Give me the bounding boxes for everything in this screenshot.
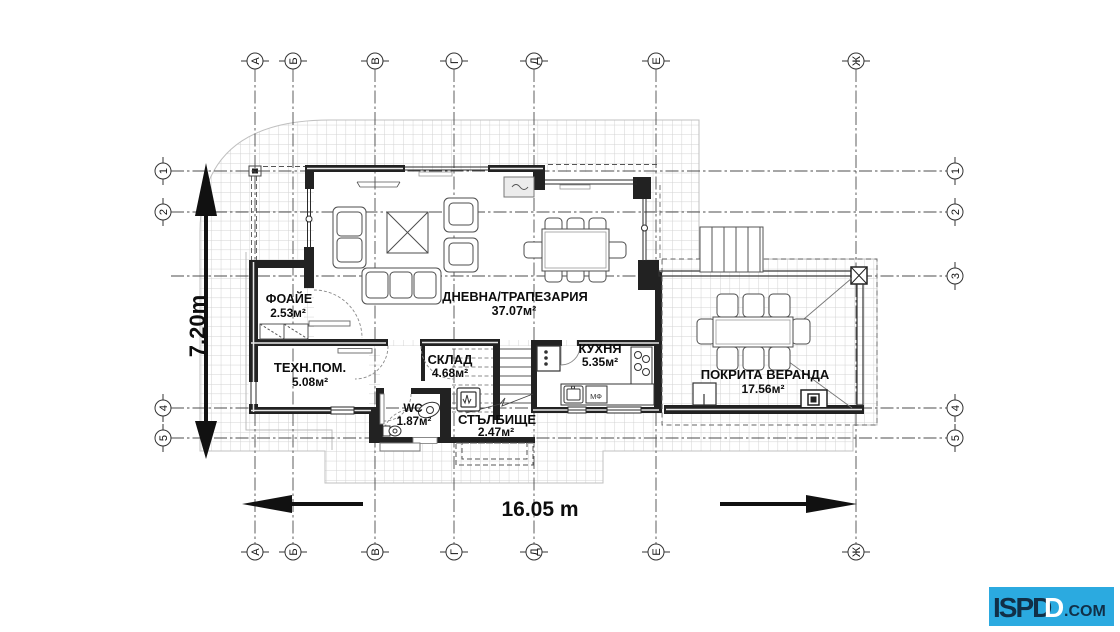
- svg-text:1.87м²: 1.87м²: [397, 416, 432, 428]
- svg-text:ТЕХН.ПОМ.: ТЕХН.ПОМ.: [274, 360, 346, 375]
- svg-text:Е: Е: [651, 548, 663, 555]
- svg-text:1: 1: [950, 168, 962, 174]
- svg-text:37.07м²: 37.07м²: [492, 304, 537, 318]
- svg-text:4: 4: [158, 405, 170, 411]
- svg-text:5.08м²: 5.08м²: [292, 375, 328, 389]
- svg-text:Б: Б: [288, 57, 300, 64]
- svg-text:Е: Е: [651, 57, 663, 64]
- svg-text:СКЛАД: СКЛАД: [428, 352, 473, 367]
- svg-text:2: 2: [158, 209, 170, 215]
- svg-text:4.68м²: 4.68м²: [432, 366, 468, 380]
- svg-text:А: А: [250, 548, 262, 556]
- svg-text:.COM: .COM: [1064, 603, 1106, 620]
- svg-text:Ж: Ж: [851, 56, 863, 66]
- svg-text:Б: Б: [288, 548, 300, 555]
- svg-text:7.20m: 7.20m: [185, 295, 210, 357]
- svg-text:А: А: [250, 57, 262, 65]
- svg-text:1: 1: [158, 168, 170, 174]
- svg-text:2.53м²: 2.53м²: [270, 306, 306, 320]
- svg-text:ПОКРИТА ВЕРАНДА: ПОКРИТА ВЕРАНДА: [701, 367, 830, 382]
- svg-text:Д: Д: [529, 548, 541, 556]
- svg-text:Г: Г: [449, 58, 461, 64]
- svg-text:Г: Г: [449, 549, 461, 555]
- svg-text:ДНЕВНА/ТРАПЕЗАРИЯ: ДНЕВНА/ТРАПЕЗАРИЯ: [442, 289, 587, 304]
- svg-text:5: 5: [950, 435, 962, 441]
- svg-text:В: В: [370, 57, 382, 64]
- svg-text:Д: Д: [529, 57, 541, 65]
- svg-text:Ж: Ж: [851, 547, 863, 557]
- svg-text:17.56м²: 17.56м²: [742, 382, 785, 396]
- svg-text:D: D: [1044, 592, 1064, 623]
- svg-text:WC: WC: [403, 403, 422, 415]
- svg-text:В: В: [370, 548, 382, 555]
- svg-text:МФ: МФ: [590, 392, 602, 401]
- svg-text:2: 2: [950, 209, 962, 215]
- svg-text:3: 3: [950, 273, 962, 279]
- svg-text:КУХНЯ: КУХНЯ: [578, 341, 621, 356]
- svg-text:ФОАЙЕ: ФОАЙЕ: [266, 291, 312, 306]
- svg-text:2.47м²: 2.47м²: [478, 425, 514, 439]
- svg-text:16.05 m: 16.05 m: [501, 498, 578, 521]
- svg-text:5.35м²: 5.35м²: [582, 355, 618, 369]
- svg-text:5: 5: [158, 435, 170, 441]
- svg-text:4: 4: [950, 405, 962, 411]
